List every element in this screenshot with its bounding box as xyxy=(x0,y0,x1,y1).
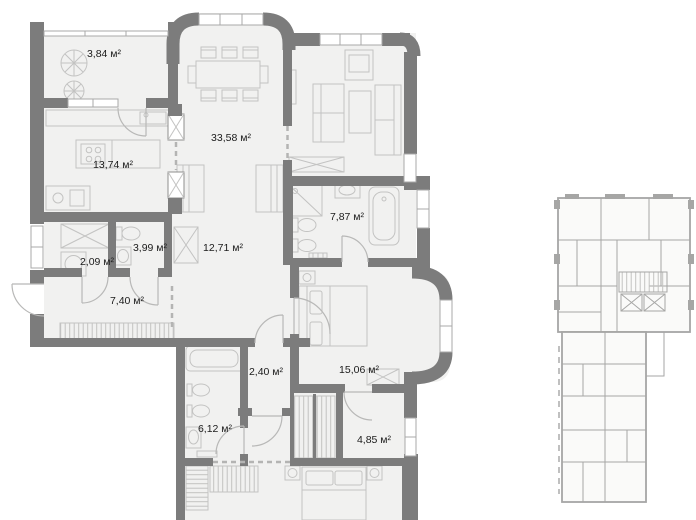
room-label-laundry: 2,09 м² xyxy=(80,256,115,268)
apartment-plan: 3,84 м² 13,74 м² 33,58 м² 7,87 м² 3,99 м… xyxy=(12,13,452,520)
floor-plan-canvas: 3,84 м² 13,74 м² 33,58 м² 7,87 м² 3,99 м… xyxy=(0,0,696,520)
room-label-dressing-room: 4,85 м² xyxy=(357,434,392,446)
room-label-living-dining: 33,58 м² xyxy=(211,132,251,144)
room-label-kitchen: 13,74 м² xyxy=(93,159,133,171)
room-label-balcony: 3,84 м² xyxy=(87,48,122,60)
room-label-entry-hall: 7,40 м² xyxy=(110,295,145,307)
floorplan-page: 3,84 м² 13,74 м² 33,58 м² 7,87 м² 3,99 м… xyxy=(0,0,696,520)
room-label-wc: 3,99 м² xyxy=(133,242,168,254)
room-label-bedroom: 15,06 м² xyxy=(339,364,379,376)
room-label-closet: 2,40 м² xyxy=(249,366,284,378)
room-label-hallway: 12,71 м² xyxy=(203,242,243,254)
room-label-bathroom-second: 6,12 м² xyxy=(198,423,233,435)
room-label-bathroom-main: 7,87 м² xyxy=(330,211,365,223)
building-key-plan xyxy=(554,194,694,502)
